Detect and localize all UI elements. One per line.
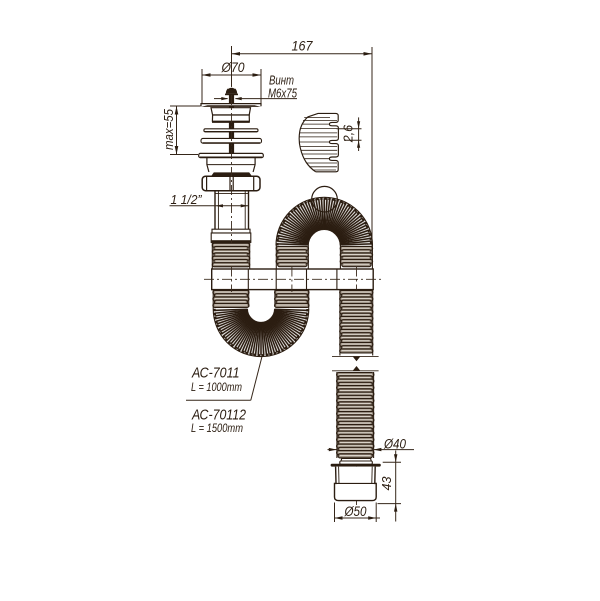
svg-text:Ø50: Ø50 (344, 504, 367, 519)
svg-text:L = 1000mm: L = 1000mm (191, 382, 242, 394)
svg-text:L = 1500mm: L = 1500mm (191, 423, 243, 435)
svg-text:max=55: max=55 (162, 109, 176, 150)
svg-text:2,6: 2,6 (342, 125, 356, 143)
svg-text:АС-70112: АС-70112 (191, 407, 246, 424)
svg-text:1 1/2”: 1 1/2” (171, 193, 203, 207)
svg-text:АС-7011: АС-7011 (191, 365, 239, 382)
svg-text:Ø40: Ø40 (383, 436, 406, 451)
svg-text:43: 43 (380, 477, 394, 491)
svg-text:Ø70: Ø70 (221, 60, 245, 75)
svg-text:167: 167 (292, 39, 313, 54)
